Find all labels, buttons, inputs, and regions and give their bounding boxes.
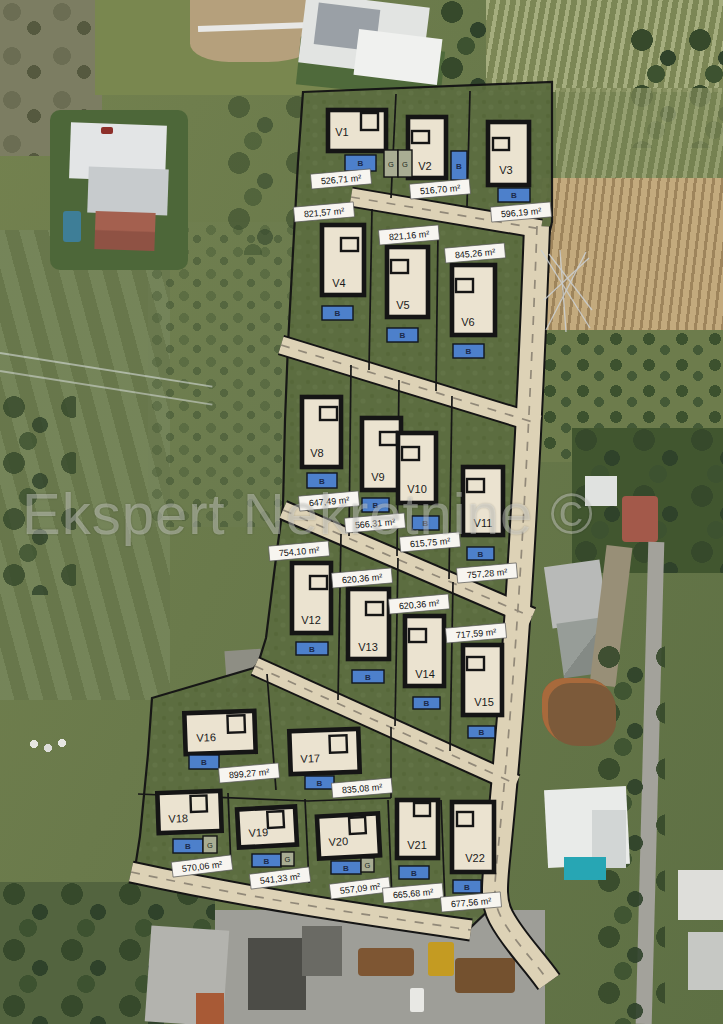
badge-b-V15-label: B [479, 728, 485, 737]
badge-b-V4-label: B [335, 309, 341, 318]
plot-id-label: V2 [418, 160, 431, 172]
garage-label: G [365, 861, 371, 870]
power-pylon [541, 250, 592, 332]
house-notch-V8 [320, 407, 337, 420]
aerial-site-plan: V1B526,71 m²V2B516,70 m²V3B596,19 m²V4B8… [0, 0, 723, 1024]
badge-b-V13-label: B [365, 673, 371, 682]
plot-id-label: V3 [499, 164, 512, 176]
plot-id-label: V18 [168, 812, 188, 825]
garage-label: G [388, 160, 394, 169]
villa-V4: V4 [322, 225, 364, 295]
plot-id-label: V5 [396, 299, 409, 311]
house-notch-V13 [366, 602, 383, 615]
garage-label: G [207, 841, 213, 850]
house-notch-V16 [227, 715, 245, 733]
villa-V6: V6 [452, 265, 495, 335]
plot-id-label: V21 [407, 839, 427, 851]
house-notch-V5 [391, 260, 408, 273]
villa-V22: V22 [452, 802, 494, 872]
badge-b-V1-label: B [358, 159, 364, 168]
villa-V18: V18 [157, 791, 221, 833]
house-notch-V4 [341, 238, 358, 251]
villa-V20: V20 [317, 813, 380, 858]
badge-b-V3-label: B [511, 191, 517, 200]
villa-V5: V5 [387, 247, 428, 317]
badge-b-V17-label: B [317, 779, 323, 788]
house-notch-V20 [349, 817, 366, 834]
house-V17 [289, 729, 359, 774]
watermark: Ekspert Nekretnine © [22, 480, 722, 547]
plot-id-label: V6 [461, 316, 474, 328]
house-notch-V14 [409, 629, 426, 642]
villa-V1: V1 [328, 110, 386, 151]
house-notch-V2 [412, 131, 429, 143]
villa-V12: V12 [292, 563, 331, 633]
villa-V2: V2 [408, 117, 446, 178]
badge-b-V19-label: B [264, 857, 270, 866]
house-notch-V19 [267, 811, 284, 828]
plot-id-label: V14 [415, 668, 435, 680]
badge-b-V12-label: B [309, 645, 315, 654]
badge-b-V11-label: B [478, 550, 484, 559]
plot-id-label: V16 [196, 731, 216, 744]
house-notch-V6 [456, 279, 473, 292]
house-notch-V1 [361, 113, 378, 130]
plot-id-label: V17 [300, 752, 320, 765]
house-notch-V18 [190, 795, 207, 812]
plot-id-label: V1 [335, 126, 348, 138]
garage-pair-1: G [398, 150, 412, 177]
house-notch-V10 [402, 447, 419, 460]
plot-id-label: V13 [358, 641, 378, 653]
badge-b-V14-label: B [424, 699, 430, 708]
villa-V13: V13 [348, 589, 389, 659]
garage-label: G [285, 855, 291, 864]
villa-V8: V8 [302, 397, 341, 467]
plot-id-label: V12 [301, 614, 321, 626]
badge-b-V6-label: B [466, 347, 472, 356]
badge-b-V2-label: B [456, 162, 462, 171]
badge-b-V21-label: B [411, 869, 417, 878]
villa-V3: V3 [488, 122, 529, 185]
garage-label: G [402, 160, 408, 169]
house-notch-V21 [414, 803, 430, 816]
badge-b-V5-label: B [400, 331, 406, 340]
plot-id-label: V20 [328, 835, 348, 848]
house-notch-V9 [380, 432, 397, 445]
plot-id-label: V8 [310, 447, 323, 459]
plot-id-label: V4 [332, 277, 345, 289]
badge-b-V18-label: B [185, 842, 191, 851]
badge-b-V20-label: B [343, 864, 349, 873]
villa-V16: V16 [184, 711, 255, 754]
villa-V19: V19 [237, 807, 297, 848]
garage-pair-0: G [384, 150, 398, 177]
villa-V21: V21 [397, 800, 438, 858]
house-notch-V15 [467, 657, 484, 670]
house-notch-V22 [457, 812, 473, 826]
badge-b-V16-label: B [201, 758, 207, 767]
house-notch-V12 [310, 576, 327, 589]
house-notch-V3 [493, 138, 509, 150]
villa-V14: V14 [405, 616, 444, 686]
villa-V15: V15 [463, 645, 502, 715]
badge-b-V22-label: B [464, 883, 470, 892]
villa-V17: V17 [289, 729, 359, 774]
plot-id-label: V19 [248, 826, 268, 839]
plot-id-label: V22 [465, 852, 485, 864]
plot-id-label: V15 [474, 696, 494, 708]
house-notch-V17 [329, 735, 347, 753]
